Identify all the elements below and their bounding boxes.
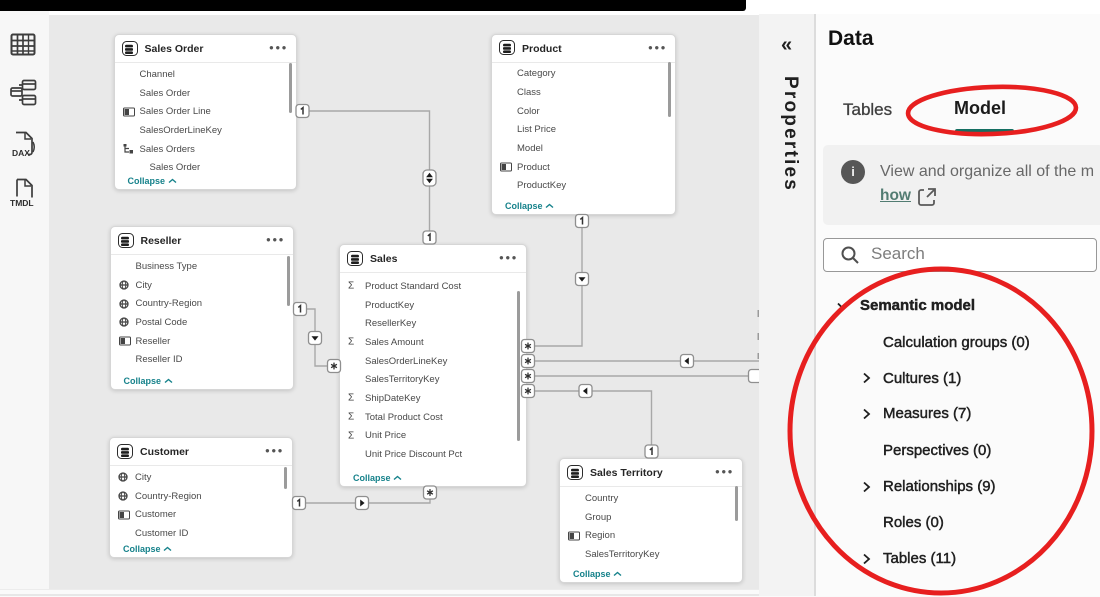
svg-text:TMDL: TMDL bbox=[10, 198, 34, 208]
svg-text:DAX: DAX bbox=[12, 148, 30, 158]
